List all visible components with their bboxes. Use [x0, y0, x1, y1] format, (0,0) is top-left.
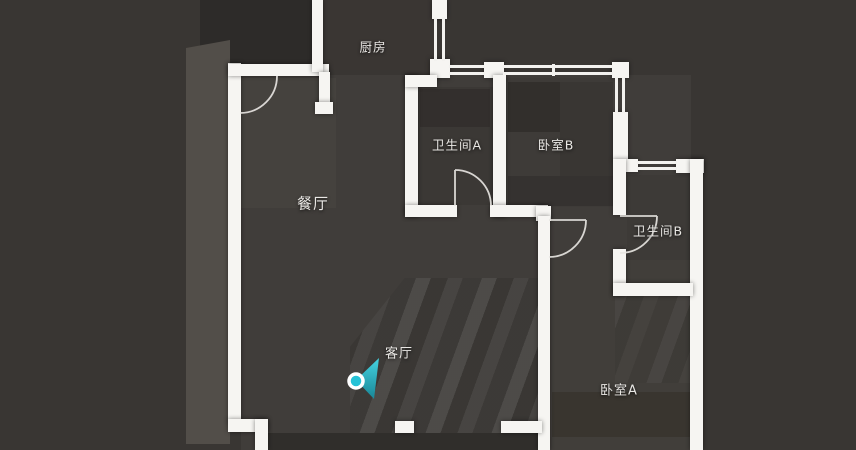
room-label-bedroom-b[interactable]: 卧室B — [538, 135, 575, 154]
room-label-kitchen[interactable]: 厨房 — [359, 37, 386, 56]
floorplan-view: 厨房 卫生间A 卧室B 餐厅 卫生间B 客厅 卧室A — [0, 0, 856, 450]
camera-marker-layer — [0, 0, 856, 450]
room-label-dining-room[interactable]: 餐厅 — [297, 193, 329, 214]
camera-position-marker[interactable] — [349, 374, 363, 388]
room-label-bathroom-a[interactable]: 卫生间A — [432, 135, 482, 154]
room-label-living-room[interactable]: 客厅 — [385, 343, 413, 362]
room-label-bathroom-b[interactable]: 卫生间B — [633, 221, 683, 240]
room-label-bedroom-a[interactable]: 卧室A — [600, 380, 638, 399]
